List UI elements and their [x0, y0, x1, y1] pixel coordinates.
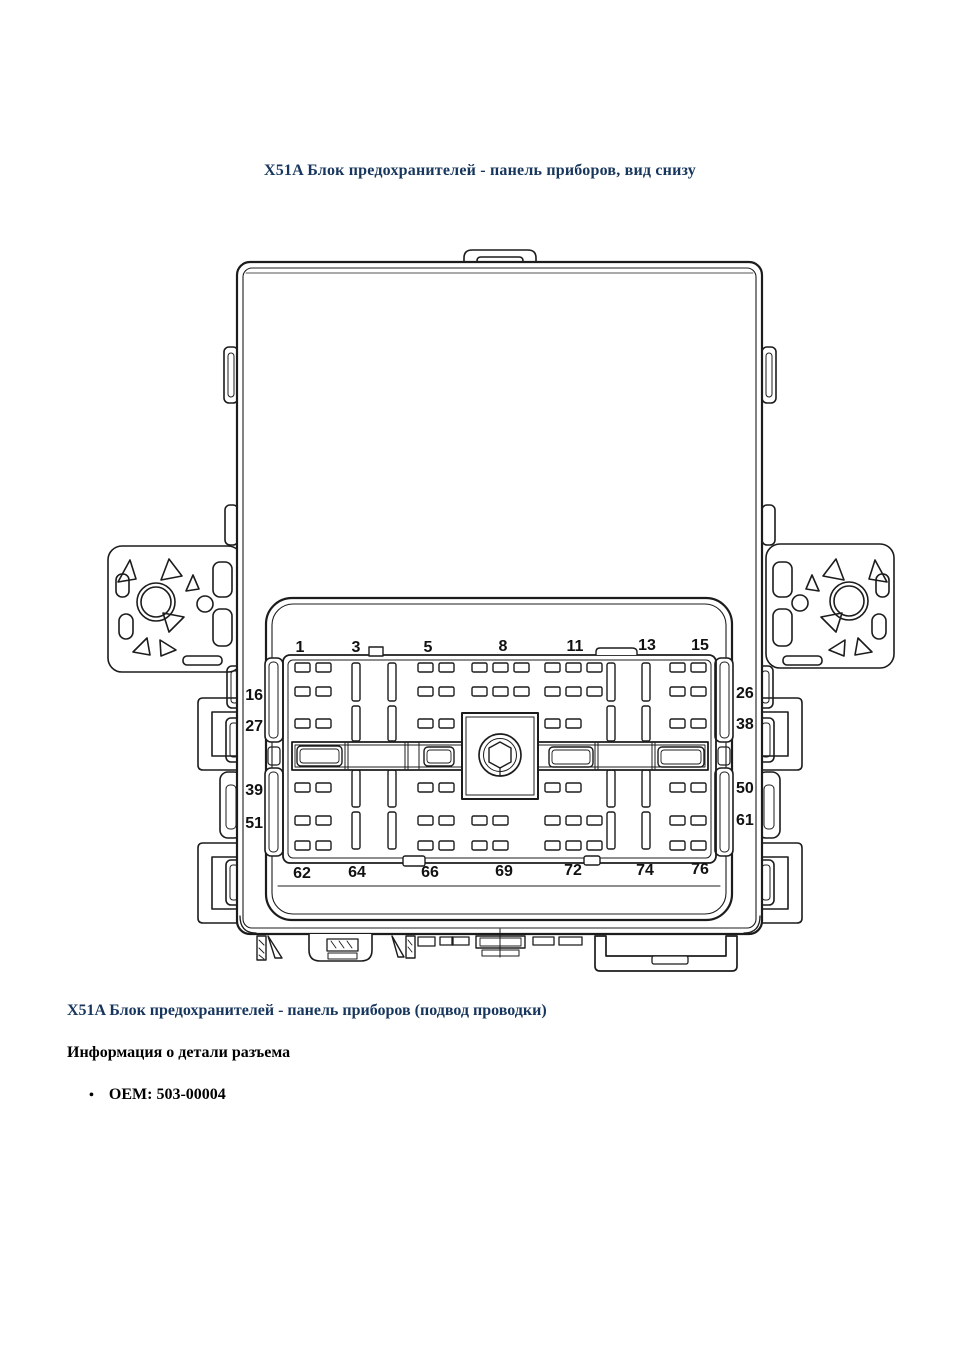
pin-label-bottom-64: 64 [348, 864, 366, 881]
oem-bullet-item: • OEM: 503-00004 [89, 1086, 226, 1104]
pin-label-left-39: 39 [245, 782, 263, 799]
pin-label-bottom-66: 66 [421, 864, 439, 881]
pin-label-right-50: 50 [736, 780, 754, 797]
pin-label-top-3: 3 [352, 639, 361, 656]
bullet-icon: • [89, 1088, 94, 1104]
pin-label-top-1: 1 [296, 639, 305, 656]
left-mounting-bracket [108, 546, 242, 672]
section-heading: X51A Блок предохранителей - панель прибо… [67, 1002, 547, 1020]
pin-label-top-15: 15 [691, 637, 709, 654]
fuse-block-diagram: 1 3 5 8 11 13 15 62 64 66 69 72 74 76 16… [0, 0, 960, 1358]
left-side-tabs [198, 666, 242, 923]
pin-label-right-38: 38 [736, 716, 754, 733]
subsection-heading: Информация о детали разъема [67, 1044, 290, 1062]
right-side-tabs [758, 666, 802, 923]
oem-value: OEM: 503-00004 [109, 1086, 226, 1104]
pin-label-bottom-62: 62 [293, 865, 311, 882]
pin-label-top-8: 8 [499, 638, 508, 655]
pin-label-left-51: 51 [245, 815, 263, 832]
document-page: X51A Блок предохранителей - панель прибо… [0, 0, 960, 1358]
pin-label-bottom-74: 74 [636, 862, 654, 879]
central-bolt-block [462, 713, 538, 799]
pin-label-top-13: 13 [638, 637, 656, 654]
pin-label-top-11: 11 [567, 638, 584, 655]
pin-label-left-16: 16 [245, 687, 263, 704]
pin-label-bottom-69: 69 [495, 863, 513, 880]
pin-label-left-27: 27 [245, 718, 263, 735]
pin-label-top-5: 5 [424, 639, 433, 656]
bottom-clips [257, 929, 737, 971]
pin-label-bottom-72: 72 [564, 862, 582, 879]
pin-label-right-61: 61 [736, 812, 754, 829]
pin-label-bottom-76: 76 [691, 861, 709, 878]
right-mounting-bracket [766, 544, 894, 668]
pin-label-right-26: 26 [736, 685, 754, 702]
